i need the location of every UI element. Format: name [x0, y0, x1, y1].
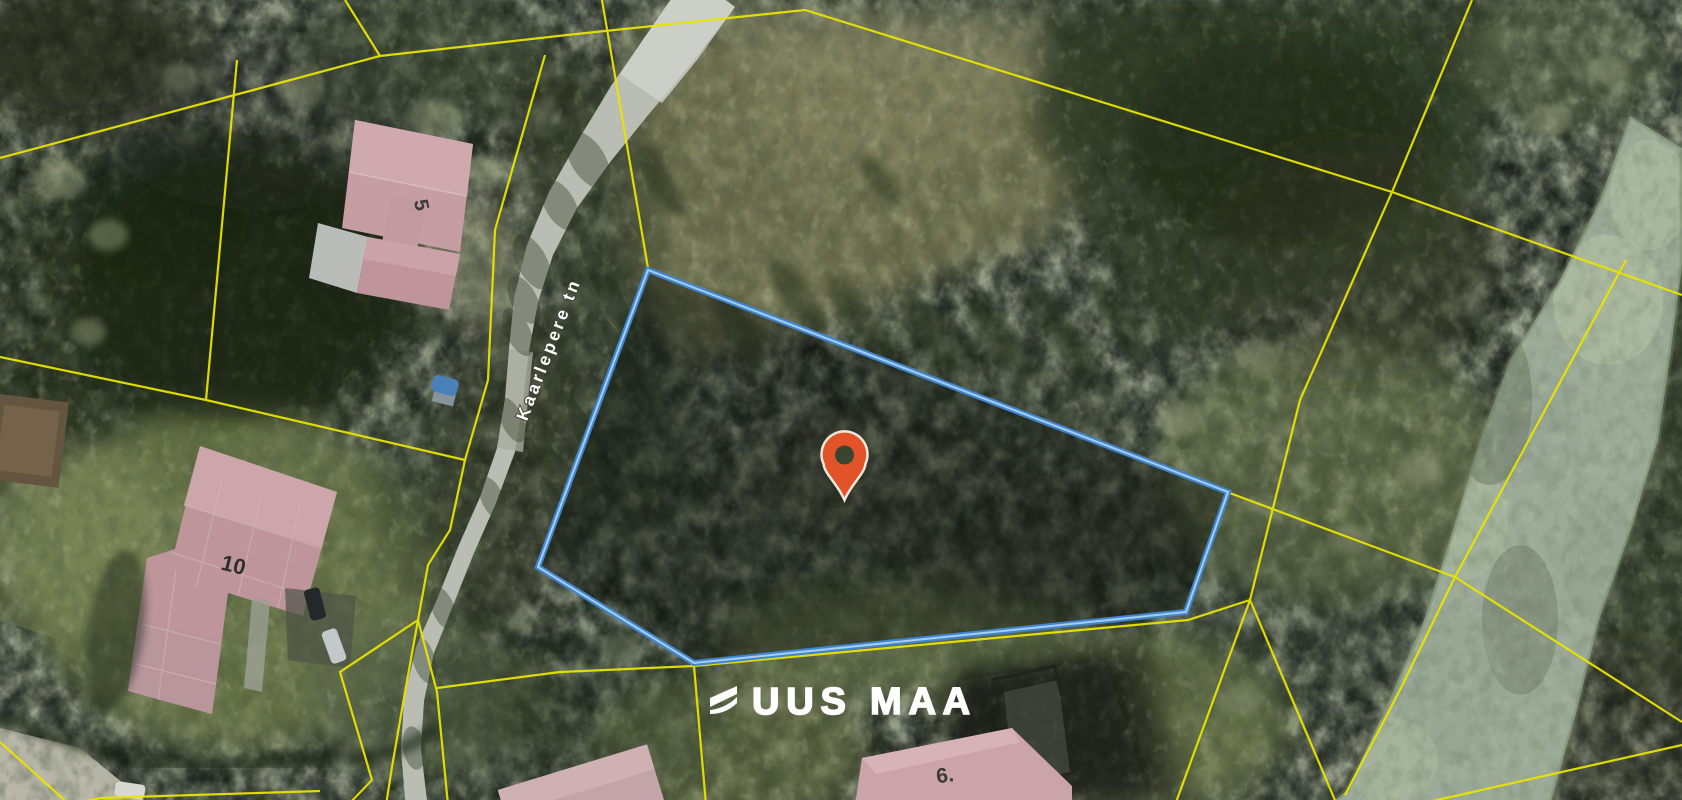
svg-text:UUS MAA: UUS MAA [752, 681, 977, 723]
svg-text:6.: 6. [935, 763, 956, 788]
